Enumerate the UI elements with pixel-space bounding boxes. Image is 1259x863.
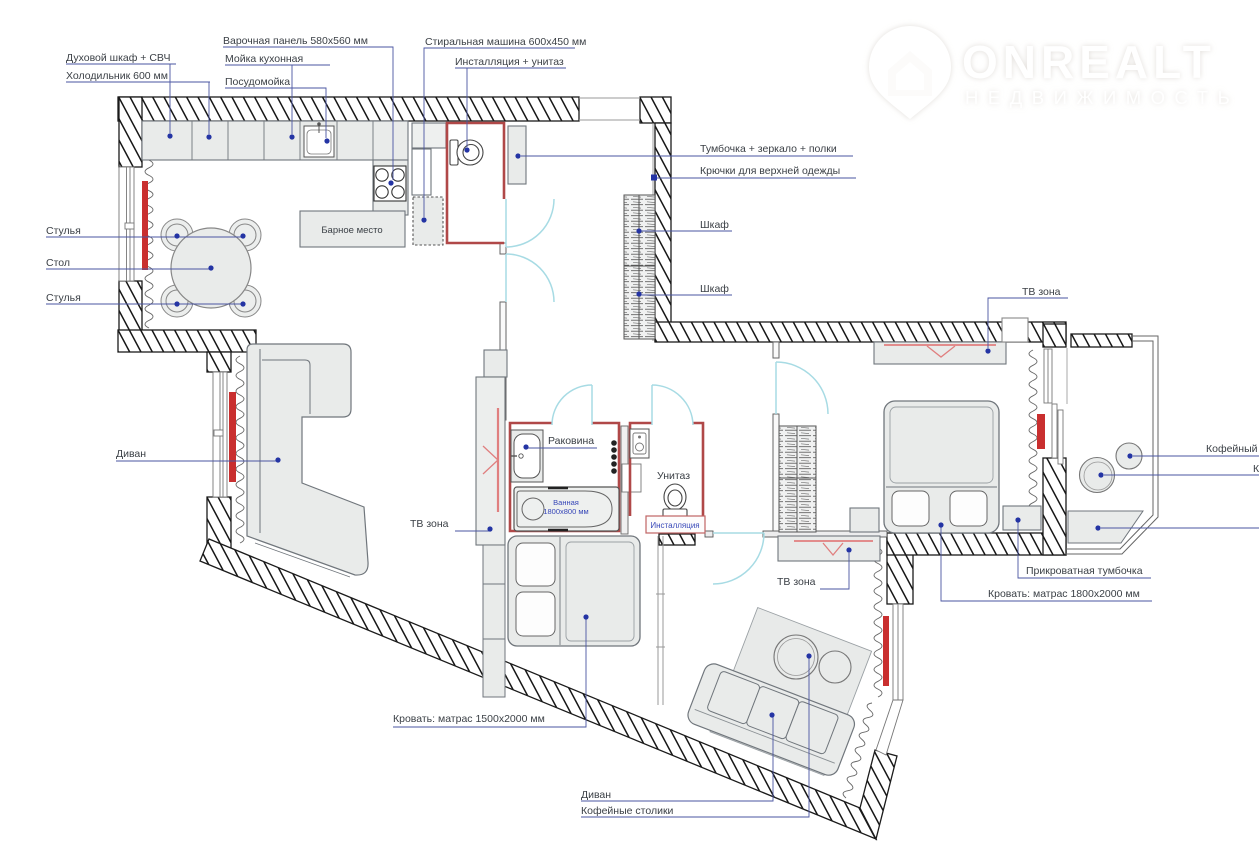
svg-text:Холодильник 600 мм: Холодильник 600 мм xyxy=(66,70,168,82)
svg-text:Стол: Стол xyxy=(46,257,70,269)
svg-text:Диван: Диван xyxy=(116,448,146,460)
svg-text:Варочная панель 580x560 мм: Варочная панель 580x560 мм xyxy=(223,35,368,47)
svg-text:ТВ зона: ТВ зона xyxy=(777,576,816,588)
svg-text:Ванная: Ванная xyxy=(553,498,579,507)
svg-text:Диван: Диван xyxy=(581,789,611,801)
svg-text:Духовой шкаф + СВЧ: Духовой шкаф + СВЧ xyxy=(66,52,170,64)
svg-text:Посудомойка: Посудомойка xyxy=(225,76,290,88)
svg-text:Крючки для верхней одежды: Крючки для верхней одежды xyxy=(700,165,840,177)
svg-text:ONREALT: ONREALT xyxy=(962,36,1216,88)
svg-text:Кровать: матрас 1800x2000 мм: Кровать: матрас 1800x2000 мм xyxy=(988,588,1140,600)
svg-text:Раковина: Раковина xyxy=(548,435,594,447)
svg-text:Кофейный столик: Кофейный столик xyxy=(1206,443,1259,455)
svg-text:Стулья: Стулья xyxy=(46,292,81,304)
svg-text:Инсталляция: Инсталляция xyxy=(650,521,699,530)
svg-text:Барное место: Барное место xyxy=(321,225,382,236)
svg-text:Инсталляция + унитаз: Инсталляция + унитаз xyxy=(455,56,564,68)
svg-text:Кофейные столики: Кофейные столики xyxy=(581,805,674,817)
svg-text:НЕДВИЖИМОСТЬ: НЕДВИЖИМОСТЬ xyxy=(965,87,1239,108)
svg-text:Прикроватная тумбочка: Прикроватная тумбочка xyxy=(1026,565,1143,577)
svg-text:Кровать: матрас 1500x2000 мм: Кровать: матрас 1500x2000 мм xyxy=(393,713,545,725)
svg-text:Кофейный столик: Кофейный столик xyxy=(1253,463,1259,475)
svg-text:Шкаф: Шкаф xyxy=(700,283,729,295)
svg-text:ТВ зона: ТВ зона xyxy=(410,518,449,530)
svg-text:Мойка кухонная: Мойка кухонная xyxy=(225,53,303,65)
svg-text:Тумбочка + зеркало + полки: Тумбочка + зеркало + полки xyxy=(700,143,837,155)
svg-text:Стиральная машина 600x450 мм: Стиральная машина 600x450 мм xyxy=(425,36,586,48)
svg-text:ТВ зона: ТВ зона xyxy=(1022,286,1061,298)
svg-text:1800x800 мм: 1800x800 мм xyxy=(543,507,588,516)
svg-text:Унитаз: Унитаз xyxy=(657,470,690,482)
svg-text:Шкаф: Шкаф xyxy=(700,219,729,231)
svg-text:Стулья: Стулья xyxy=(46,225,81,237)
